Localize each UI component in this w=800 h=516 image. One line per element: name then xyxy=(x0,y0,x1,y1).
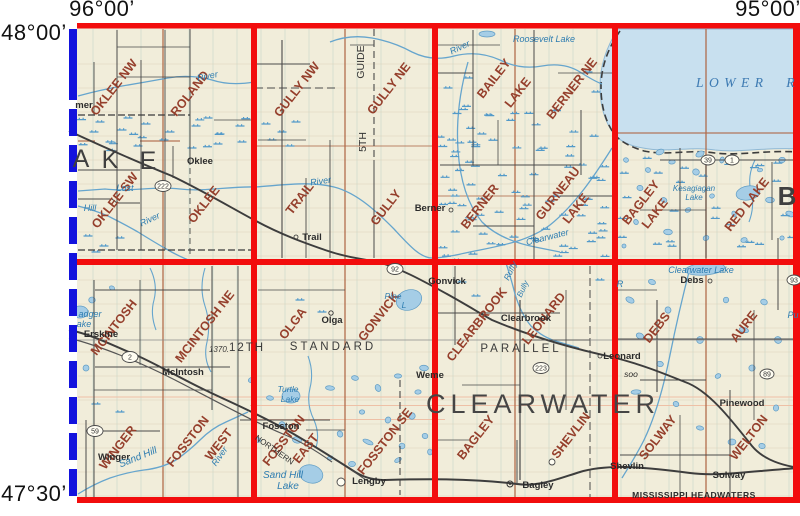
svg-text:Olga: Olga xyxy=(321,315,343,326)
svg-text:Lake: Lake xyxy=(277,481,299,492)
svg-text:soo: soo xyxy=(624,369,638,379)
svg-text:ake: ake xyxy=(77,319,92,329)
svg-text:Pinewood: Pinewood xyxy=(720,398,765,409)
svg-text:Solway: Solway xyxy=(713,470,746,481)
svg-text:5TH: 5TH xyxy=(357,132,369,152)
svg-text:GUIDE: GUIDE xyxy=(355,45,367,78)
svg-text:Lake: Lake xyxy=(281,394,300,404)
svg-text:K: K xyxy=(102,146,119,174)
svg-text:R: R xyxy=(617,279,624,289)
svg-text:Oklee: Oklee xyxy=(187,156,213,167)
svg-text:Turtle: Turtle xyxy=(277,384,298,394)
svg-text:2: 2 xyxy=(128,354,132,361)
svg-text:92: 92 xyxy=(391,266,399,273)
svg-text:Clearwater Lake: Clearwater Lake xyxy=(668,265,734,275)
svg-text:mer: mer xyxy=(75,100,93,111)
svg-text:Weme: Weme xyxy=(416,370,444,381)
svg-text:Sand Hill: Sand Hill xyxy=(263,470,304,481)
svg-text:Lost: Lost xyxy=(116,183,134,193)
svg-text:Trail: Trail xyxy=(302,232,322,243)
svg-text:223: 223 xyxy=(535,365,547,372)
svg-text:CLEARWATER: CLEARWATER xyxy=(426,389,660,419)
svg-text:1370.: 1370. xyxy=(209,345,229,354)
svg-text:48°00’: 48°00’ xyxy=(1,20,67,45)
svg-text:Clearbrook: Clearbrook xyxy=(501,313,552,324)
svg-text:adger: adger xyxy=(78,309,102,319)
svg-text:95°00’: 95°00’ xyxy=(735,0,800,21)
svg-text:Shevlin: Shevlin xyxy=(610,461,644,472)
svg-text:Hill: Hill xyxy=(84,203,97,213)
svg-text:McIntosh: McIntosh xyxy=(162,367,204,378)
svg-text:222: 222 xyxy=(157,183,169,190)
svg-text:Berner: Berner xyxy=(415,203,446,214)
svg-text:L: L xyxy=(402,300,407,310)
svg-text:E: E xyxy=(140,147,157,175)
svg-text:Roosevelt Lake: Roosevelt Lake xyxy=(513,34,575,44)
svg-text:39: 39 xyxy=(704,157,712,164)
svg-text:Leonard: Leonard xyxy=(603,351,641,362)
svg-text:Lengby: Lengby xyxy=(352,476,386,487)
svg-text:Bagley: Bagley xyxy=(522,480,554,491)
svg-text:LOWER R: LOWER R xyxy=(695,75,800,90)
svg-text:MISSISSIPPI HEADWATERS: MISSISSIPPI HEADWATERS xyxy=(632,490,756,500)
svg-text:Pine: Pine xyxy=(384,291,401,301)
svg-text:47°30’: 47°30’ xyxy=(1,481,67,506)
svg-text:Lake: Lake xyxy=(685,193,703,202)
svg-text:Kesagiagan: Kesagiagan xyxy=(673,184,716,193)
svg-text:Fosston: Fosston xyxy=(263,421,300,432)
svg-text:89: 89 xyxy=(763,371,771,378)
svg-text:Gonvick: Gonvick xyxy=(428,276,466,287)
svg-text:Erskine: Erskine xyxy=(84,329,118,340)
svg-text:96°00’: 96°00’ xyxy=(69,0,135,21)
svg-text:1: 1 xyxy=(730,157,734,164)
svg-text:PARALLEL: PARALLEL xyxy=(480,343,561,355)
svg-text:B: B xyxy=(778,181,797,211)
svg-text:12TH: 12TH xyxy=(229,342,265,354)
svg-text:Pu: Pu xyxy=(787,310,798,320)
svg-text:93: 93 xyxy=(790,277,798,284)
svg-text:A: A xyxy=(73,145,90,173)
svg-text:59: 59 xyxy=(91,428,99,435)
svg-text:Debs: Debs xyxy=(680,275,703,286)
svg-text:STANDARD: STANDARD xyxy=(290,341,376,353)
